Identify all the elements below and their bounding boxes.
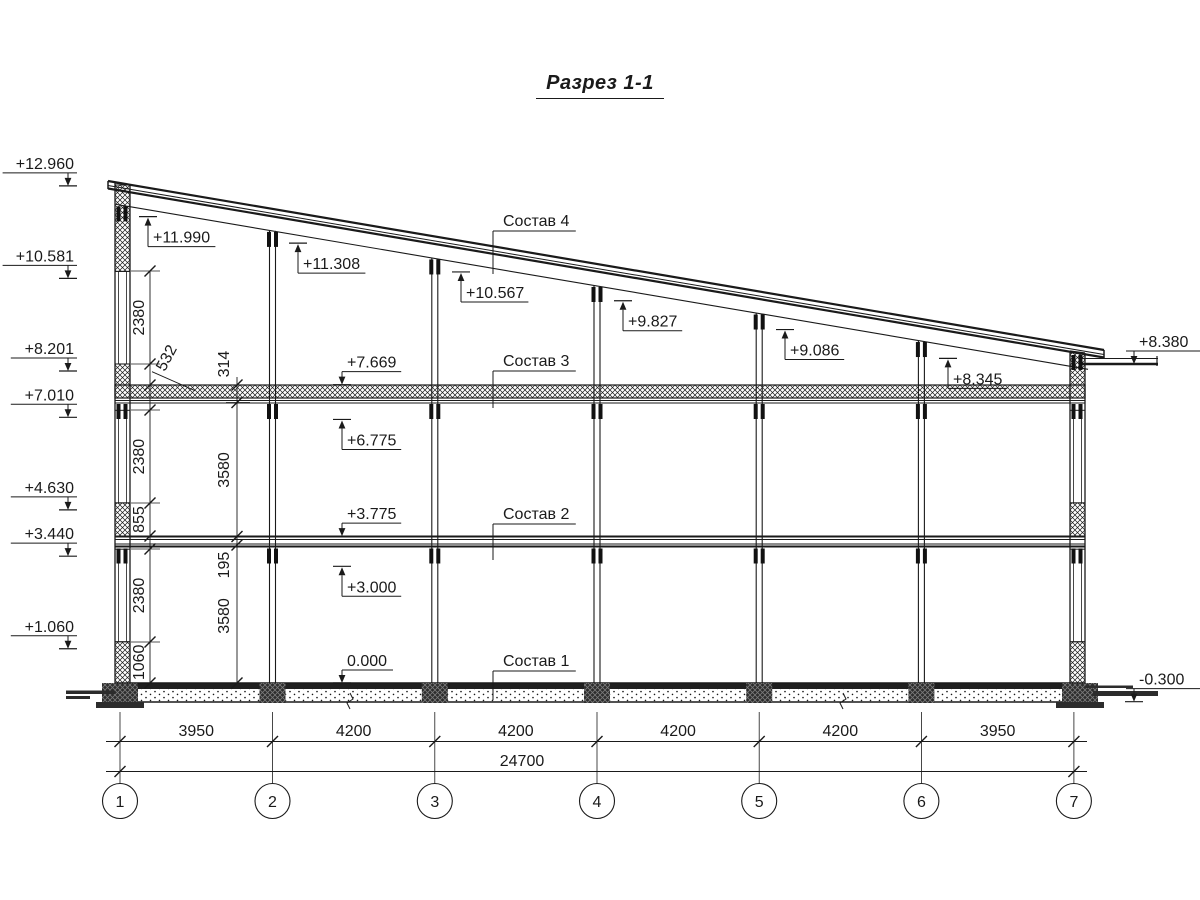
- elevation-label: +3.775: [347, 506, 396, 523]
- dimension-label: 24700: [500, 753, 545, 770]
- elevation-label: +10.567: [466, 285, 524, 302]
- elevation-label: +9.827: [628, 314, 677, 331]
- wall-footing-right-toe: [1056, 702, 1104, 708]
- column-joint: [916, 342, 920, 357]
- column-joint: [1079, 549, 1083, 564]
- column-joint: [436, 404, 440, 419]
- column-joint: [916, 404, 920, 419]
- column-joint: [761, 549, 765, 564]
- composition-label: Состав 1: [503, 653, 569, 670]
- dimension-label: 314: [216, 351, 233, 378]
- column-joint: [274, 404, 278, 419]
- column-joint: [592, 404, 596, 419]
- wall-footing-left-toe: [96, 702, 144, 708]
- elevation-label: +8.345: [953, 371, 1002, 388]
- composition-label: Состав 2: [503, 506, 569, 523]
- dimension-label: 2380: [131, 439, 148, 475]
- dimension-label: 4200: [336, 723, 372, 740]
- dimension-label: 4200: [660, 723, 696, 740]
- dimension-label: 855: [131, 506, 148, 533]
- axis-number: 6: [917, 794, 926, 811]
- column-joint: [436, 259, 440, 274]
- column-joint: [429, 404, 433, 419]
- drawing-title: Разрез 1-1: [0, 72, 1200, 99]
- column-joint: [1072, 355, 1076, 370]
- column-joint: [599, 549, 603, 564]
- axis-number: 2: [268, 794, 277, 811]
- column-joint: [592, 287, 596, 302]
- wall-panel: [116, 364, 130, 385]
- drawing-title-text: Разрез 1-1: [536, 72, 664, 99]
- elevation-label: -0.300: [1139, 672, 1184, 689]
- column-joint: [923, 549, 927, 564]
- column-joint: [599, 287, 603, 302]
- column-joint: [274, 232, 278, 247]
- column-joint: [923, 404, 927, 419]
- axis-number: 4: [593, 794, 602, 811]
- elevation-label: +7.669: [347, 355, 396, 372]
- grade-ledge-right-step: [1093, 691, 1158, 696]
- section-drawing: 2380532238085523801060314358019535803950…: [0, 0, 1200, 900]
- dimension-label: 3580: [216, 452, 233, 488]
- elevation-label: +11.990: [153, 230, 210, 247]
- column-joint: [592, 549, 596, 564]
- column-joint: [1072, 549, 1076, 564]
- elevation-label: +11.308: [303, 256, 360, 273]
- axis-number: 3: [430, 794, 439, 811]
- column-joint: [754, 315, 758, 330]
- wall-panel: [1071, 503, 1085, 536]
- wall-panel: [116, 503, 130, 536]
- column-joint: [429, 549, 433, 564]
- composition-label: Состав 4: [503, 213, 569, 230]
- column-joint: [923, 342, 927, 357]
- column-joint: [267, 404, 271, 419]
- foundation-pad: [584, 683, 610, 703]
- column-joint: [124, 549, 128, 564]
- elevation-label: +10.581: [16, 248, 74, 265]
- foundation-pad: [422, 683, 448, 703]
- column-joint: [761, 315, 765, 330]
- column-joint: [761, 404, 765, 419]
- elevation-label: +12.960: [16, 156, 74, 173]
- column-joint: [754, 549, 758, 564]
- axis-number: 1: [116, 794, 125, 811]
- dimension-label: 2380: [131, 578, 148, 614]
- elevation-label: +8.201: [25, 341, 74, 358]
- elevation-label: 0.000: [347, 653, 387, 670]
- column-joint: [754, 404, 758, 419]
- wall-panel: [1071, 642, 1085, 683]
- column-joint: [124, 404, 128, 419]
- elevation-label: +9.086: [790, 343, 839, 360]
- column-joint: [429, 259, 433, 274]
- column-joint: [599, 404, 603, 419]
- foundation-pad: [746, 683, 772, 703]
- elevation-label: +1.060: [25, 619, 74, 636]
- dimension-label: 195: [216, 552, 233, 579]
- column-joint: [1072, 404, 1076, 419]
- grade-ledge-left-step: [66, 696, 90, 699]
- dimension-label: 3950: [980, 723, 1016, 740]
- dimension-label: 4200: [823, 723, 859, 740]
- wall-panel: [116, 185, 130, 271]
- column-joint: [267, 549, 271, 564]
- elevation-label: +6.775: [347, 432, 396, 449]
- drawing-sheet: Разрез 1-1 23805322380855238010603143580…: [0, 0, 1200, 900]
- column-joint: [1079, 404, 1083, 419]
- foundation-pad: [908, 683, 934, 703]
- axis-number: 5: [755, 794, 764, 811]
- wall-panel: [116, 642, 130, 683]
- floor-slab-upper: [115, 385, 1085, 398]
- elevation-label: +7.010: [25, 387, 74, 404]
- column-joint: [436, 549, 440, 564]
- axis-number: 7: [1069, 794, 1078, 811]
- dimension-label: 3950: [178, 723, 214, 740]
- column-joint: [267, 232, 271, 247]
- column-joint: [916, 549, 920, 564]
- dimension-label: 2380: [131, 300, 148, 336]
- composition-label: Состав 3: [503, 353, 569, 370]
- column-joint: [124, 206, 128, 221]
- elevation-label: +4.630: [25, 480, 74, 497]
- column-joint: [274, 549, 278, 564]
- column-joint: [1079, 355, 1083, 370]
- column-joint: [117, 404, 121, 419]
- elevation-label: +3.000: [347, 579, 396, 596]
- foundation-pad: [260, 683, 286, 703]
- column-joint: [117, 206, 121, 221]
- grade-ledge-left: [66, 691, 115, 695]
- dimension-label: 4200: [498, 723, 534, 740]
- elevation-label: +3.440: [25, 526, 74, 543]
- elevation-label: +8.380: [1139, 334, 1188, 351]
- grade-ledge-right: [1085, 686, 1133, 689]
- column-joint: [117, 549, 121, 564]
- dimension-label: 1060: [131, 644, 148, 680]
- dimension-label: 3580: [216, 598, 233, 634]
